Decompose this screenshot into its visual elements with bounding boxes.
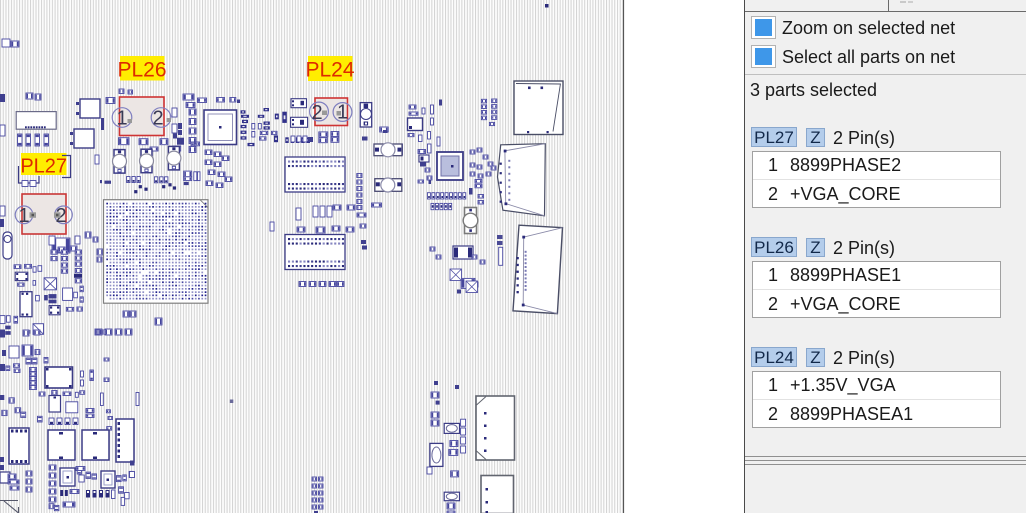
svg-text:2: 2 xyxy=(152,108,163,130)
svg-text:1: 1 xyxy=(18,205,29,227)
svg-text:PL24: PL24 xyxy=(305,59,354,82)
svg-text:PL27: PL27 xyxy=(20,156,67,178)
svg-text:2: 2 xyxy=(311,102,322,124)
svg-text:PL26: PL26 xyxy=(117,59,166,82)
svg-text:1: 1 xyxy=(116,108,127,130)
